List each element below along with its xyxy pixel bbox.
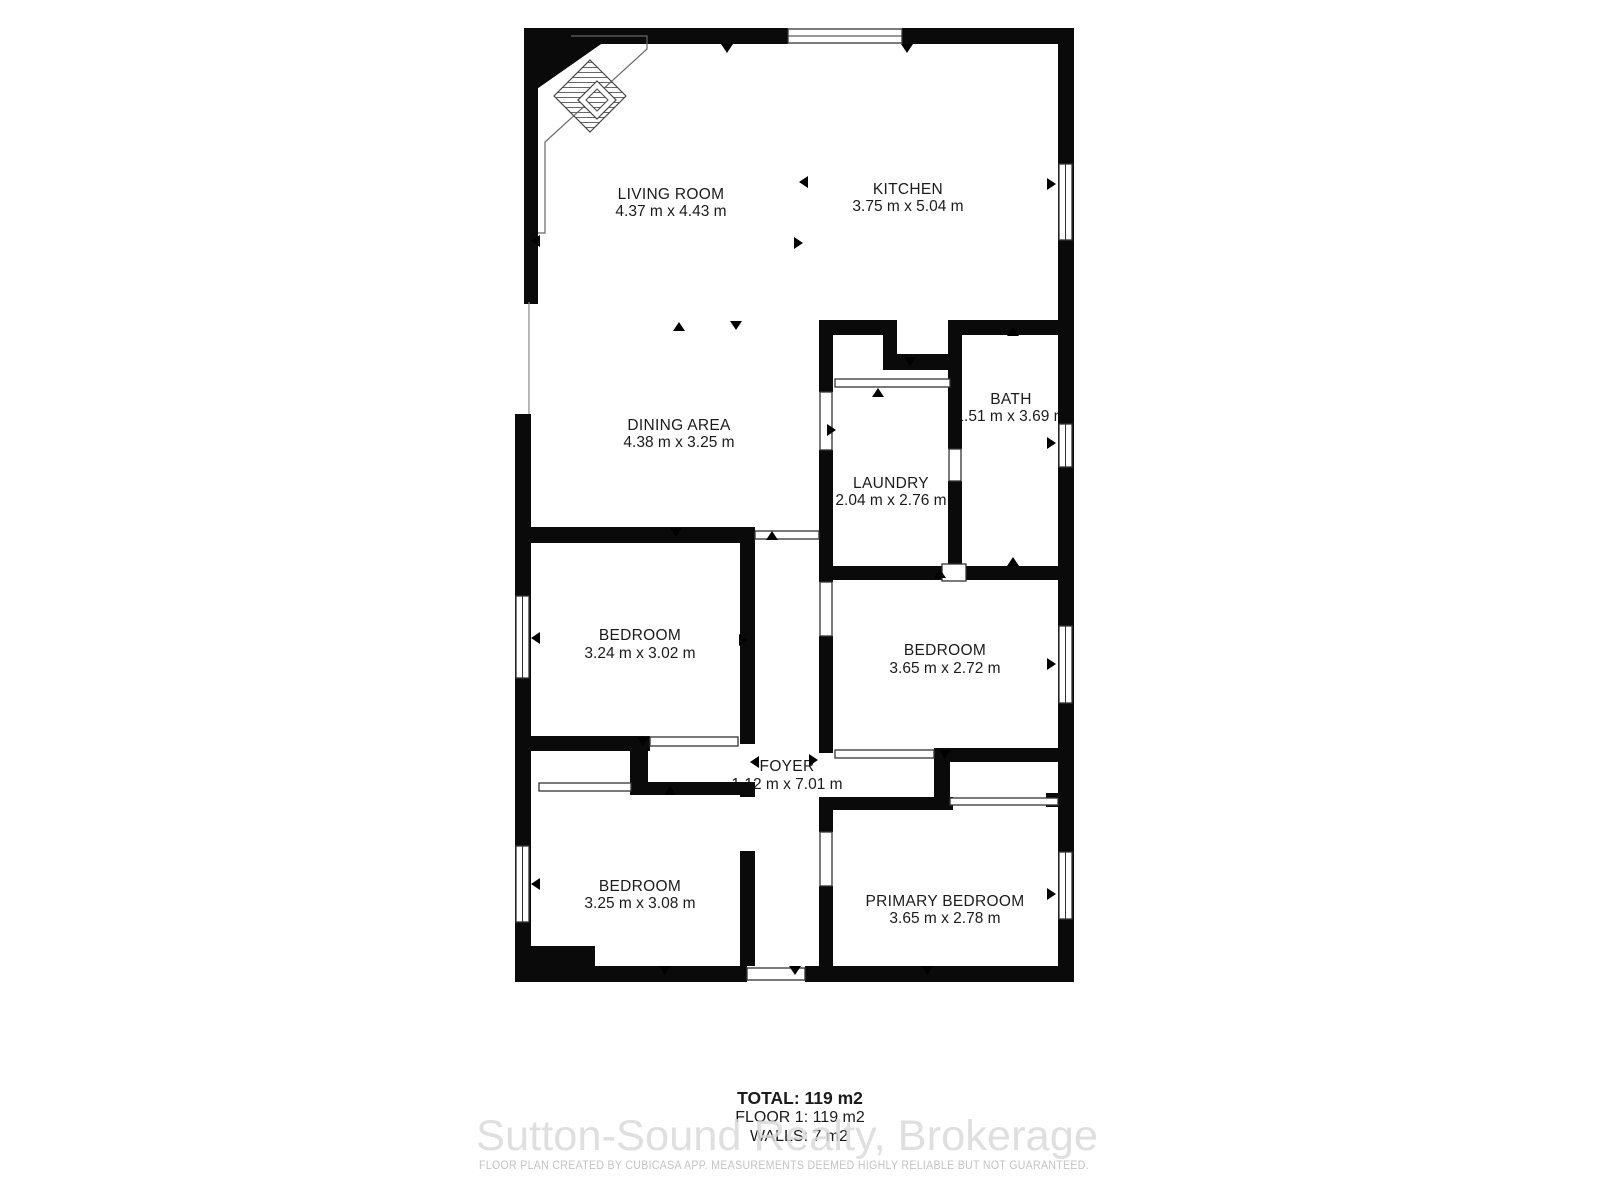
bedroom-1-door <box>650 737 738 746</box>
room-dims-bedroom-1: 3.24 m x 3.02 m <box>584 645 695 662</box>
closet-opening <box>835 750 934 758</box>
wall-layer <box>515 28 1074 982</box>
room-dims-living-room: 4.37 m x 4.43 m <box>615 203 726 220</box>
room-label-bedroom-2: BEDROOM <box>904 642 986 659</box>
disclaimer-text: FLOOR PLAN CREATED BY CUBICASA APP. MEAS… <box>479 1158 1089 1172</box>
north-compass-icon <box>554 60 626 132</box>
room-dims-bedroom-3: 3.25 m x 3.08 m <box>584 895 695 912</box>
room-label-foyer: FOYER <box>760 758 815 775</box>
bath-door <box>949 449 961 481</box>
room-dims-kitchen: 3.75 m x 5.04 m <box>852 198 963 215</box>
window-door-layer <box>516 29 1072 980</box>
total-area-text: TOTAL: 119 m2 <box>737 1088 863 1108</box>
bath-lower-opening <box>942 564 966 581</box>
room-label-dining-area: DINING AREA <box>627 417 731 434</box>
room-label-bedroom-1: BEDROOM <box>599 627 681 644</box>
room-dims-bedroom-2: 3.65 m x 2.72 m <box>889 660 1000 677</box>
camera-marker-icons <box>531 44 1056 975</box>
bedroom-right-door <box>820 582 832 636</box>
room-dims-bath: 1.51 m x 3.69 m <box>955 408 1066 425</box>
laundry-sliding-opening <box>835 379 950 387</box>
room-dims-dining-area: 4.38 m x 3.25 m <box>623 434 734 451</box>
bedroom-3-opening <box>539 783 631 791</box>
room-dims-laundry: 2.04 m x 2.76 m <box>835 492 946 509</box>
laundry-door <box>820 392 832 450</box>
foyer-top-opening <box>755 531 819 539</box>
room-label-primary-bedroom: PRIMARY BEDROOM <box>866 893 1025 910</box>
primary-closet-line <box>950 798 1058 805</box>
floor-plan-canvas: LIVING ROOM 4.37 m x 4.43 m KITCHEN 3.75… <box>0 0 1600 1200</box>
room-label-kitchen: KITCHEN <box>873 181 943 198</box>
room-label-living-room: LIVING ROOM <box>618 186 725 203</box>
watermark-text: Sutton-Sound Realty, Brokerage <box>476 1112 1098 1160</box>
room-dims-primary-bedroom: 3.65 m x 2.78 m <box>889 910 1000 927</box>
primary-bedroom-door <box>820 832 832 886</box>
room-label-bedroom-3: BEDROOM <box>599 878 681 895</box>
room-label-laundry: LAUNDRY <box>853 475 929 492</box>
room-label-bath: BATH <box>990 391 1031 408</box>
